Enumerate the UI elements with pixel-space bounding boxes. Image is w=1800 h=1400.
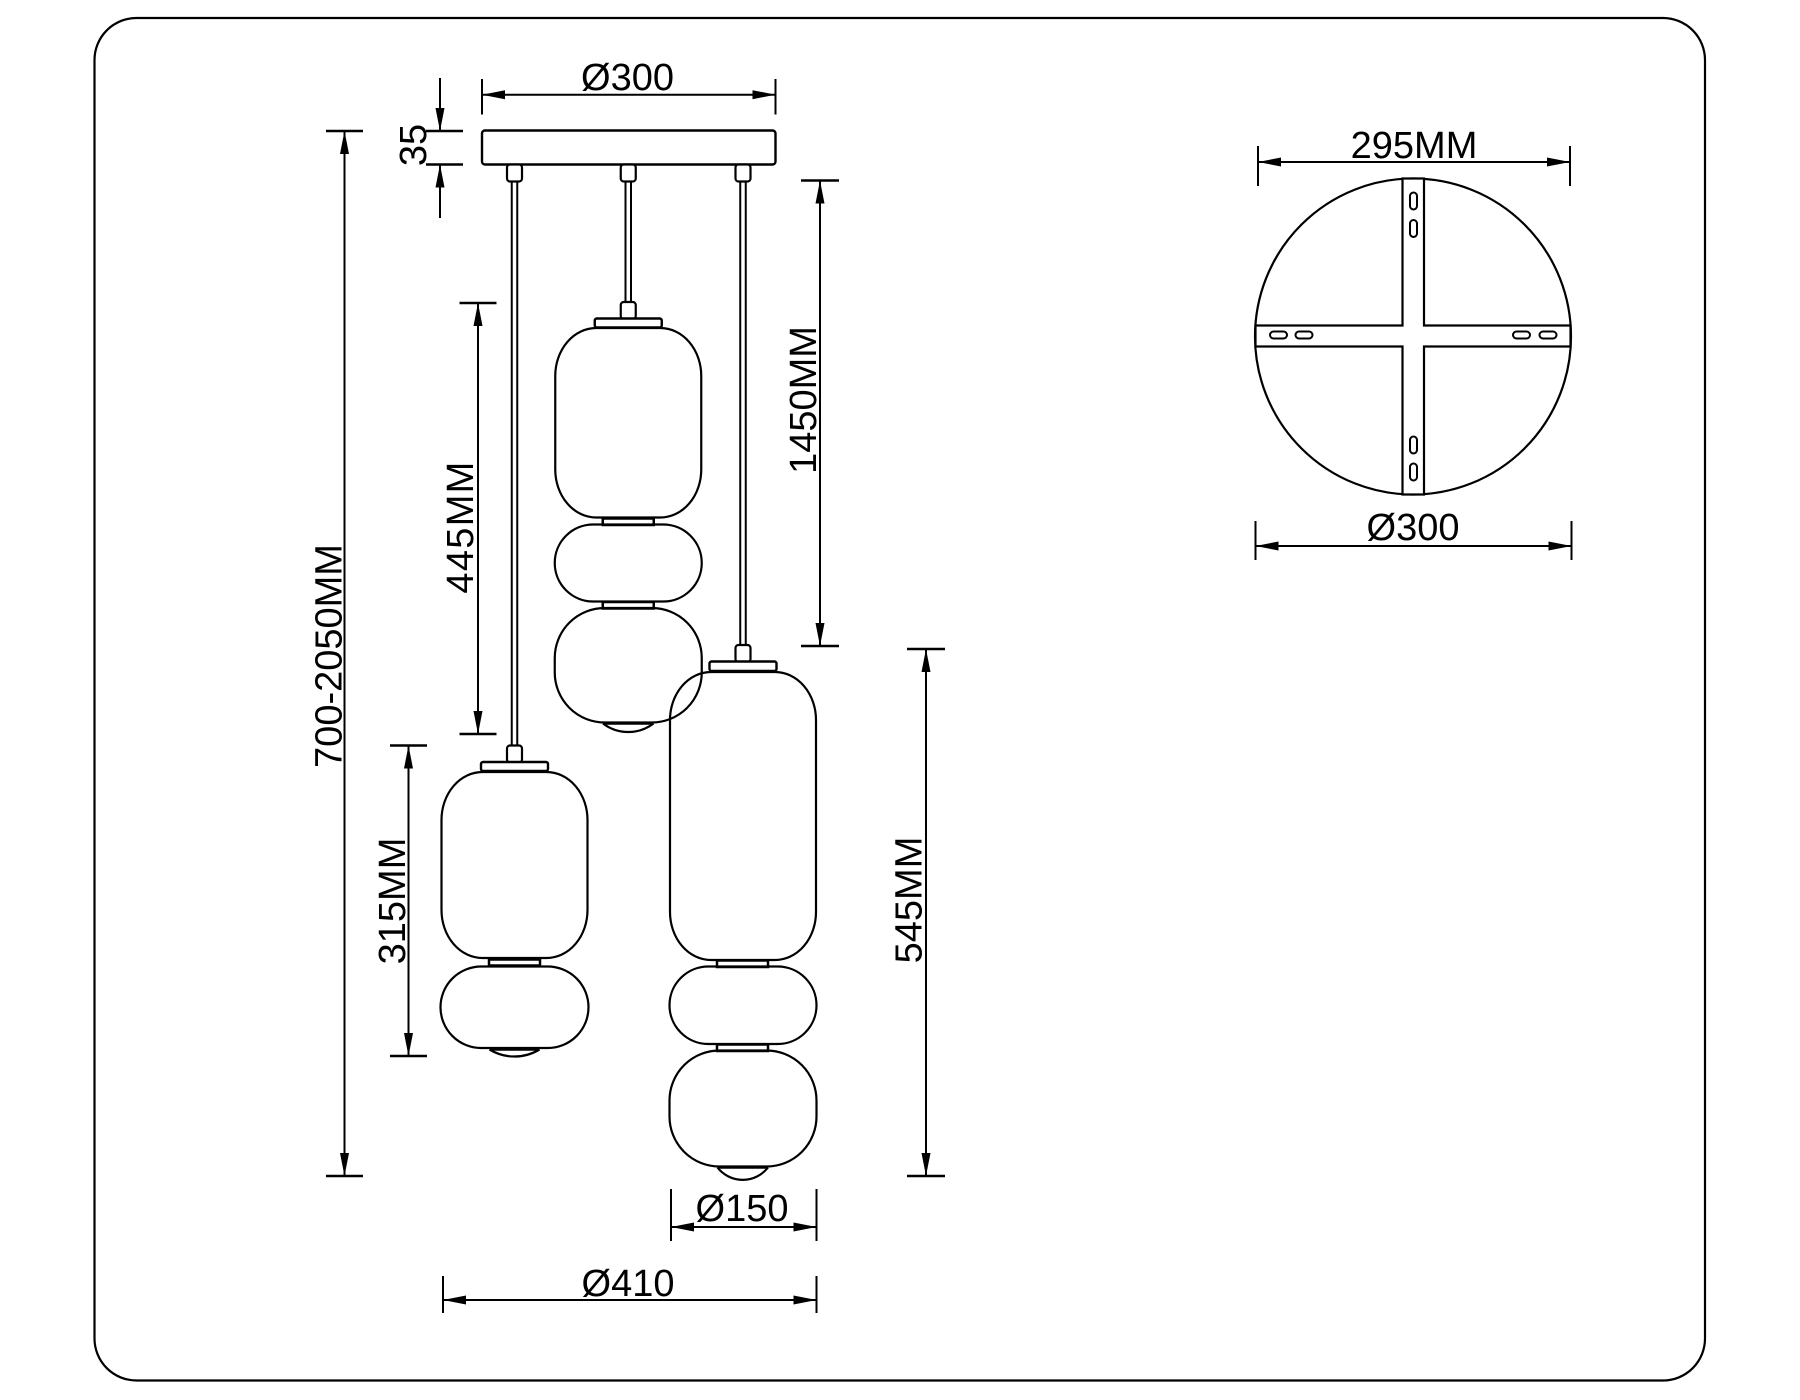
svg-text:545MM: 545MM (889, 837, 931, 964)
svg-text:Ø300: Ø300 (581, 57, 674, 99)
svg-text:35: 35 (393, 124, 435, 166)
svg-text:Ø410: Ø410 (582, 1263, 675, 1305)
svg-text:1450MM: 1450MM (783, 326, 825, 474)
svg-text:Ø150: Ø150 (696, 1188, 789, 1230)
svg-text:700-2050MM: 700-2050MM (309, 544, 351, 768)
svg-text:445MM: 445MM (440, 460, 482, 593)
svg-text:Ø300: Ø300 (1367, 507, 1460, 549)
svg-text:295MM: 295MM (1351, 125, 1478, 167)
svg-text:315MM: 315MM (372, 838, 414, 965)
